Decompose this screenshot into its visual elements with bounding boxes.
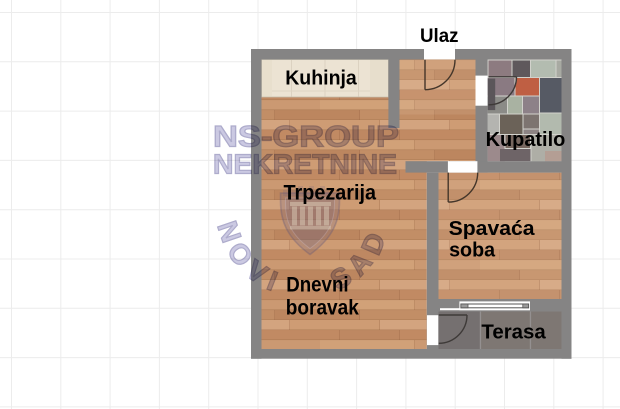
svg-text:NEKRETNINE: NEKRETNINE (213, 149, 397, 180)
svg-text:Kupatilo: Kupatilo (486, 129, 566, 151)
svg-text:Spavaća: Spavaća (449, 217, 536, 240)
svg-text:soba: soba (449, 238, 496, 261)
svg-text:Dnevni: Dnevni (286, 273, 348, 296)
svg-text:Trpezarija: Trpezarija (284, 182, 377, 205)
svg-text:Terasa: Terasa (481, 321, 546, 344)
svg-text:Kuhinja: Kuhinja (285, 67, 357, 90)
svg-text:Ulaz: Ulaz (420, 25, 459, 47)
svg-text:boravak: boravak (286, 297, 359, 320)
